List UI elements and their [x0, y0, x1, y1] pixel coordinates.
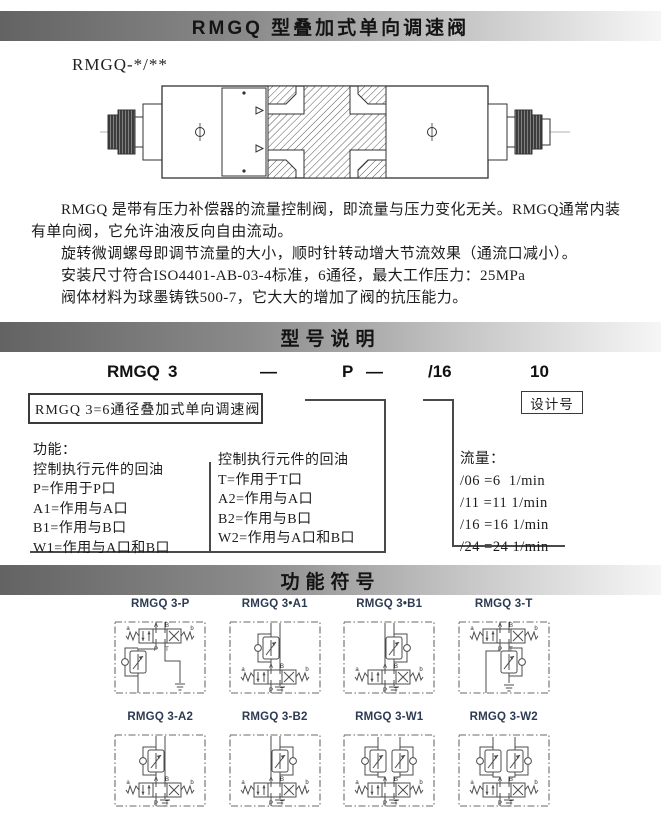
flow-rate-column: 流量： /06 =6 1/min /11 =11 1/min /16 =16 1…: [460, 448, 549, 558]
svg-text:a: a: [241, 780, 245, 786]
section-header-symbols: 功能符号: [0, 565, 661, 595]
svg-text:b: b: [191, 780, 195, 786]
connector-line-flow-vertical: [452, 399, 454, 547]
symbol-tile: RMGQ 3-P abABPT: [103, 598, 218, 697]
series-note-box: RMGQ 3=6通径叠加式单向调速阀: [28, 393, 263, 424]
function-columns-divider: [209, 462, 211, 552]
compensator-insert: [222, 88, 266, 176]
function-line: 控制执行元件的回油: [218, 451, 355, 471]
svg-text:B: B: [509, 777, 513, 783]
connector-line-flow-horizontal: [423, 399, 454, 401]
code-design: 10: [530, 362, 549, 382]
function-line: A1=作用与A口: [33, 500, 170, 520]
svg-text:b: b: [191, 626, 195, 632]
hydraulic-symbol-diagram: abABPT: [226, 732, 324, 810]
symbol-tile: RMGQ 3•B1 abABPT: [332, 598, 447, 697]
hydraulic-symbol-diagram: abABPT: [340, 732, 438, 810]
section-header-model: 型号说明: [0, 322, 661, 352]
code-function: P: [342, 362, 353, 382]
svg-text:a: a: [127, 626, 131, 632]
svg-text:a: a: [127, 780, 131, 786]
symbol-tile: RMGQ 3-A2 abABPT: [103, 711, 218, 810]
datasheet-page: RMGQ 型叠加式单向调速阀 RMGQ-*/**: [0, 0, 661, 815]
page-title: RMGQ 型叠加式单向调速阀: [192, 13, 469, 40]
svg-text:b: b: [534, 626, 538, 632]
function-line: W1=作用与A口和B口: [33, 539, 170, 559]
connector-line-p-horizontal: [305, 399, 386, 401]
left-adjust-knob: [108, 104, 162, 160]
flow-line: 流量：: [460, 448, 549, 470]
svg-text:b: b: [305, 780, 309, 786]
svg-text:b: b: [420, 667, 424, 673]
flow-line: /16 =16 1/min: [460, 514, 549, 536]
symbols-section-title: 功能符号: [280, 567, 380, 594]
svg-text:b: b: [534, 780, 538, 786]
svg-text:B: B: [280, 664, 284, 670]
code-size: 3: [168, 362, 177, 382]
hydraulic-symbol-diagram: abABPT: [455, 732, 553, 810]
symbol-tile: RMGQ 3-W2 abABPT: [447, 711, 562, 810]
hydraulic-symbol-diagram: abABPT: [226, 619, 324, 697]
function-line: B1=作用与B口: [33, 519, 170, 539]
function-line: P=作用于P口: [33, 480, 170, 500]
svg-text:B: B: [165, 777, 169, 783]
function-column-2: 控制执行元件的回油 T=作用于T口 A2=作用与A口 B2=作用与B口 W2=作…: [218, 451, 355, 549]
section-header-main: RMGQ 型叠加式单向调速阀: [0, 11, 661, 41]
function-line: W2=作用与A口和B口: [218, 529, 355, 549]
right-adjust-knob: [488, 104, 550, 160]
symbol-label: RMGQ 3-W1: [355, 711, 423, 723]
code-dash: —: [260, 362, 277, 382]
symbol-tile: RMGQ 3-W1 abABPT: [332, 711, 447, 810]
symbol-label: RMGQ 3-P: [131, 598, 189, 610]
symbol-tile: RMGQ 3-B2 abABPT: [218, 711, 333, 810]
symbol-label: RMGQ 3-T: [475, 598, 533, 610]
function-symbols-grid: RMGQ 3-P abABPT RMGQ 3•A1 abABPT RMGQ 3•…: [103, 598, 561, 810]
symbol-label: RMGQ 3-B2: [242, 711, 308, 723]
flow-line: /24 =24 1/min: [460, 536, 549, 558]
symbol-label: RMGQ 3•B1: [356, 598, 422, 610]
design-number-box: 设计号: [521, 391, 583, 414]
function-line: 控制执行元件的回油: [33, 461, 170, 481]
svg-text:B: B: [394, 777, 398, 783]
code-flow: /16: [428, 362, 452, 382]
svg-text:T: T: [165, 647, 169, 653]
symbol-tile: RMGQ 3•A1 abABPT: [218, 598, 333, 697]
symbol-tile: RMGQ 3-T abABPT: [447, 598, 562, 697]
hydraulic-symbol-diagram: abABPT: [455, 619, 553, 697]
flow-line: /06 =6 1/min: [460, 470, 549, 492]
model-section-title: 型号说明: [280, 324, 380, 351]
symbol-label: RMGQ 3-A2: [127, 711, 193, 723]
hatched-flow-section: [268, 86, 386, 178]
connector-line-p-vertical: [384, 399, 386, 552]
function-line: 功能：: [33, 441, 170, 461]
svg-text:B: B: [509, 623, 513, 629]
flow-line: /11 =11 1/min: [460, 492, 549, 514]
symbol-label: RMGQ 3•A1: [242, 598, 308, 610]
hydraulic-symbol-diagram: abABPT: [340, 619, 438, 697]
svg-text:B: B: [165, 623, 169, 629]
description-text: RMGQ 是带有压力补偿器的流量控制阀，即流量与压力变化无关。RMGQ通常内装有…: [31, 199, 632, 309]
symbol-label: RMGQ 3-W2: [470, 711, 538, 723]
description-paragraph: 安装尺寸符合ISO4401-AB-03-4标准，6通径，最大工作压力：25MPa: [31, 265, 632, 287]
svg-text:b: b: [420, 780, 424, 786]
function-line: B2=作用与B口: [218, 510, 355, 530]
function-line: T=作用于T口: [218, 471, 355, 491]
model-code-label: RMGQ-*/**: [72, 55, 168, 75]
code-dash: —: [366, 362, 383, 382]
svg-text:B: B: [280, 777, 284, 783]
svg-text:a: a: [356, 780, 360, 786]
description-paragraph: 阀体材料为球墨铸铁500-7，它大大的增加了阀的抗压能力。: [31, 287, 632, 309]
description-paragraph: 旋转微调螺母即调节流量的大小，顺时针转动增大节流效果（通流口减小）。: [31, 243, 632, 265]
hydraulic-symbol-diagram: abABPT: [111, 619, 209, 697]
svg-text:a: a: [470, 780, 474, 786]
svg-text:B: B: [394, 664, 398, 670]
svg-text:a: a: [356, 667, 360, 673]
svg-text:b: b: [305, 667, 309, 673]
description-paragraph: RMGQ 是带有压力补偿器的流量控制阀，即流量与压力变化无关。RMGQ通常内装有…: [31, 199, 632, 243]
function-line: A2=作用与A口: [218, 490, 355, 510]
valve-cross-section-drawing: [100, 82, 570, 182]
svg-text:a: a: [470, 626, 474, 632]
svg-text:a: a: [241, 667, 245, 673]
code-series: RMGQ: [107, 362, 160, 382]
hydraulic-symbol-diagram: abABPT: [111, 732, 209, 810]
function-column-1: 功能： 控制执行元件的回油 P=作用于P口 A1=作用与A口 B1=作用与B口 …: [33, 441, 170, 558]
